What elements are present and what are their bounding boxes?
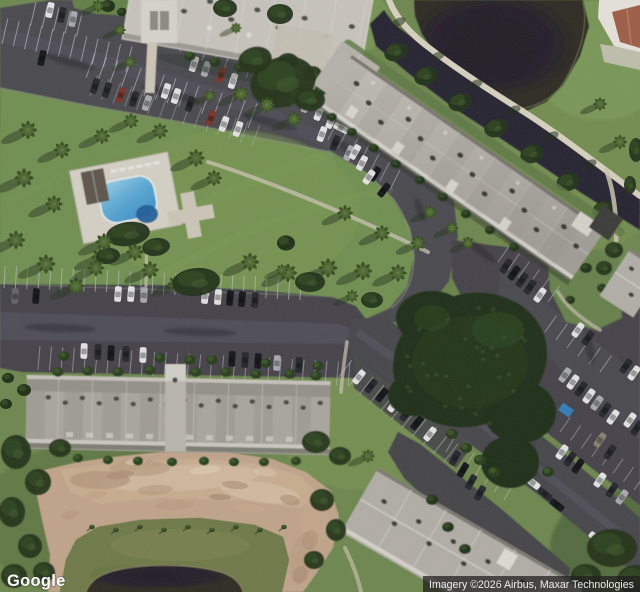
svg-text:Imagery ©2026 Airbus, Maxar Te: Imagery ©2026 Airbus, Maxar Technologies: [429, 579, 634, 591]
svg-text:Google: Google: [7, 572, 66, 590]
